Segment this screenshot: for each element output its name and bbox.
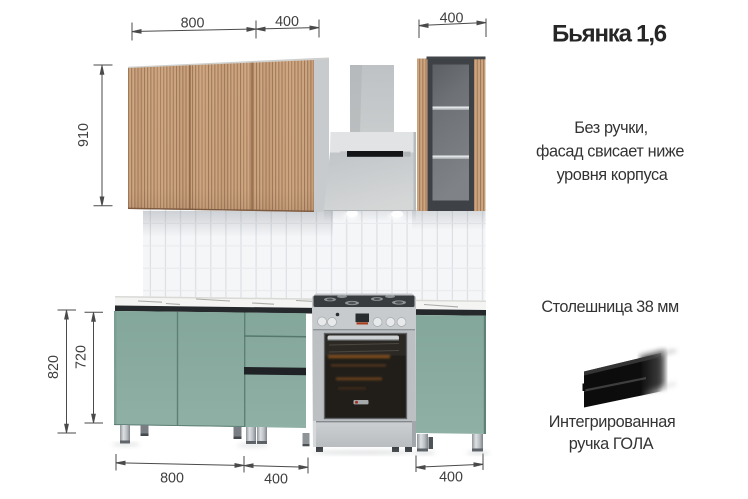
- svg-text:ручка ГОЛА: ручка ГОЛА: [569, 435, 654, 453]
- svg-text:720: 720: [74, 345, 90, 369]
- svg-text:400: 400: [439, 470, 463, 486]
- svg-text:400: 400: [275, 14, 299, 30]
- svg-text:фасад свисает ниже: фасад свисает ниже: [536, 143, 684, 161]
- svg-text:Бьянка 1,6: Бьянка 1,6: [552, 21, 667, 48]
- svg-text:910: 910: [76, 123, 92, 147]
- svg-text:400: 400: [264, 472, 288, 488]
- svg-text:уровня корпуса: уровня корпуса: [557, 166, 669, 184]
- svg-text:Без ручки,: Без ручки,: [574, 119, 648, 137]
- svg-text:400: 400: [440, 11, 464, 27]
- svg-text:Столешница 38 мм: Столешница 38 мм: [541, 298, 679, 316]
- svg-text:Интегрированная: Интегрированная: [549, 413, 676, 431]
- svg-text:800: 800: [160, 471, 184, 487]
- svg-text:820: 820: [46, 355, 62, 379]
- svg-text:800: 800: [181, 16, 205, 32]
